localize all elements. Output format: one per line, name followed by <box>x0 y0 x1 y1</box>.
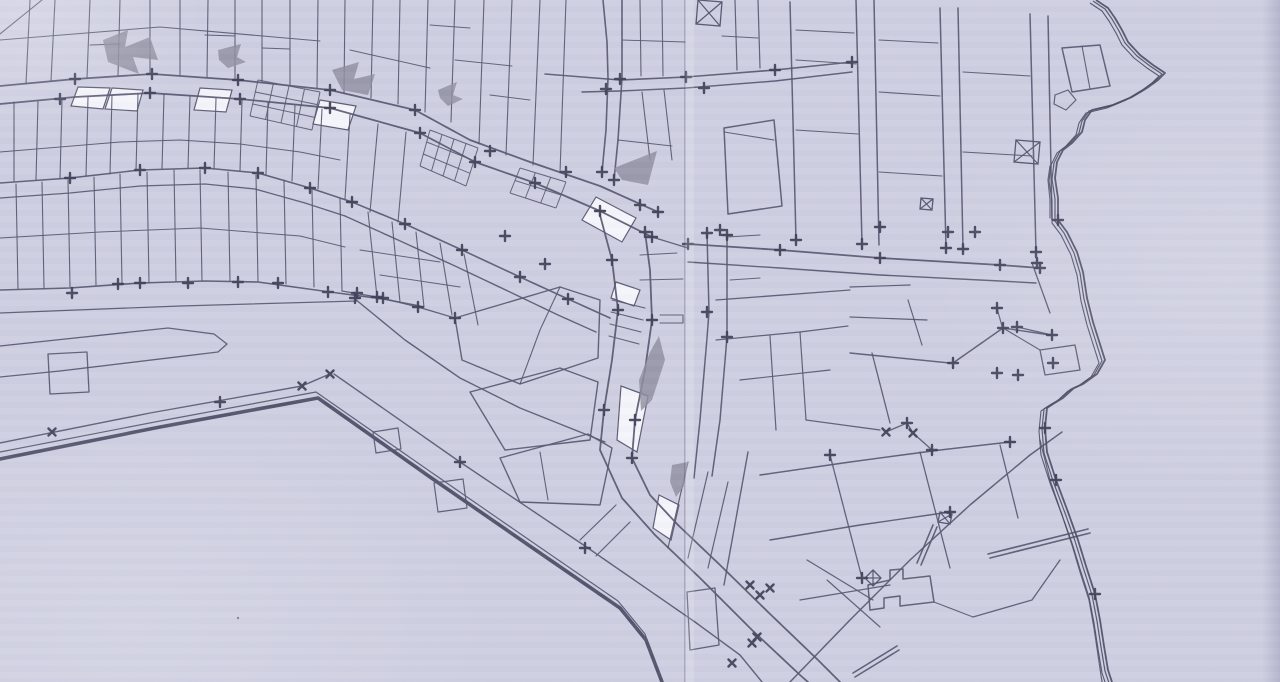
scan-grain-overlay <box>0 0 1280 682</box>
scanned-map-page <box>0 0 1280 682</box>
map-canvas <box>0 0 1280 682</box>
